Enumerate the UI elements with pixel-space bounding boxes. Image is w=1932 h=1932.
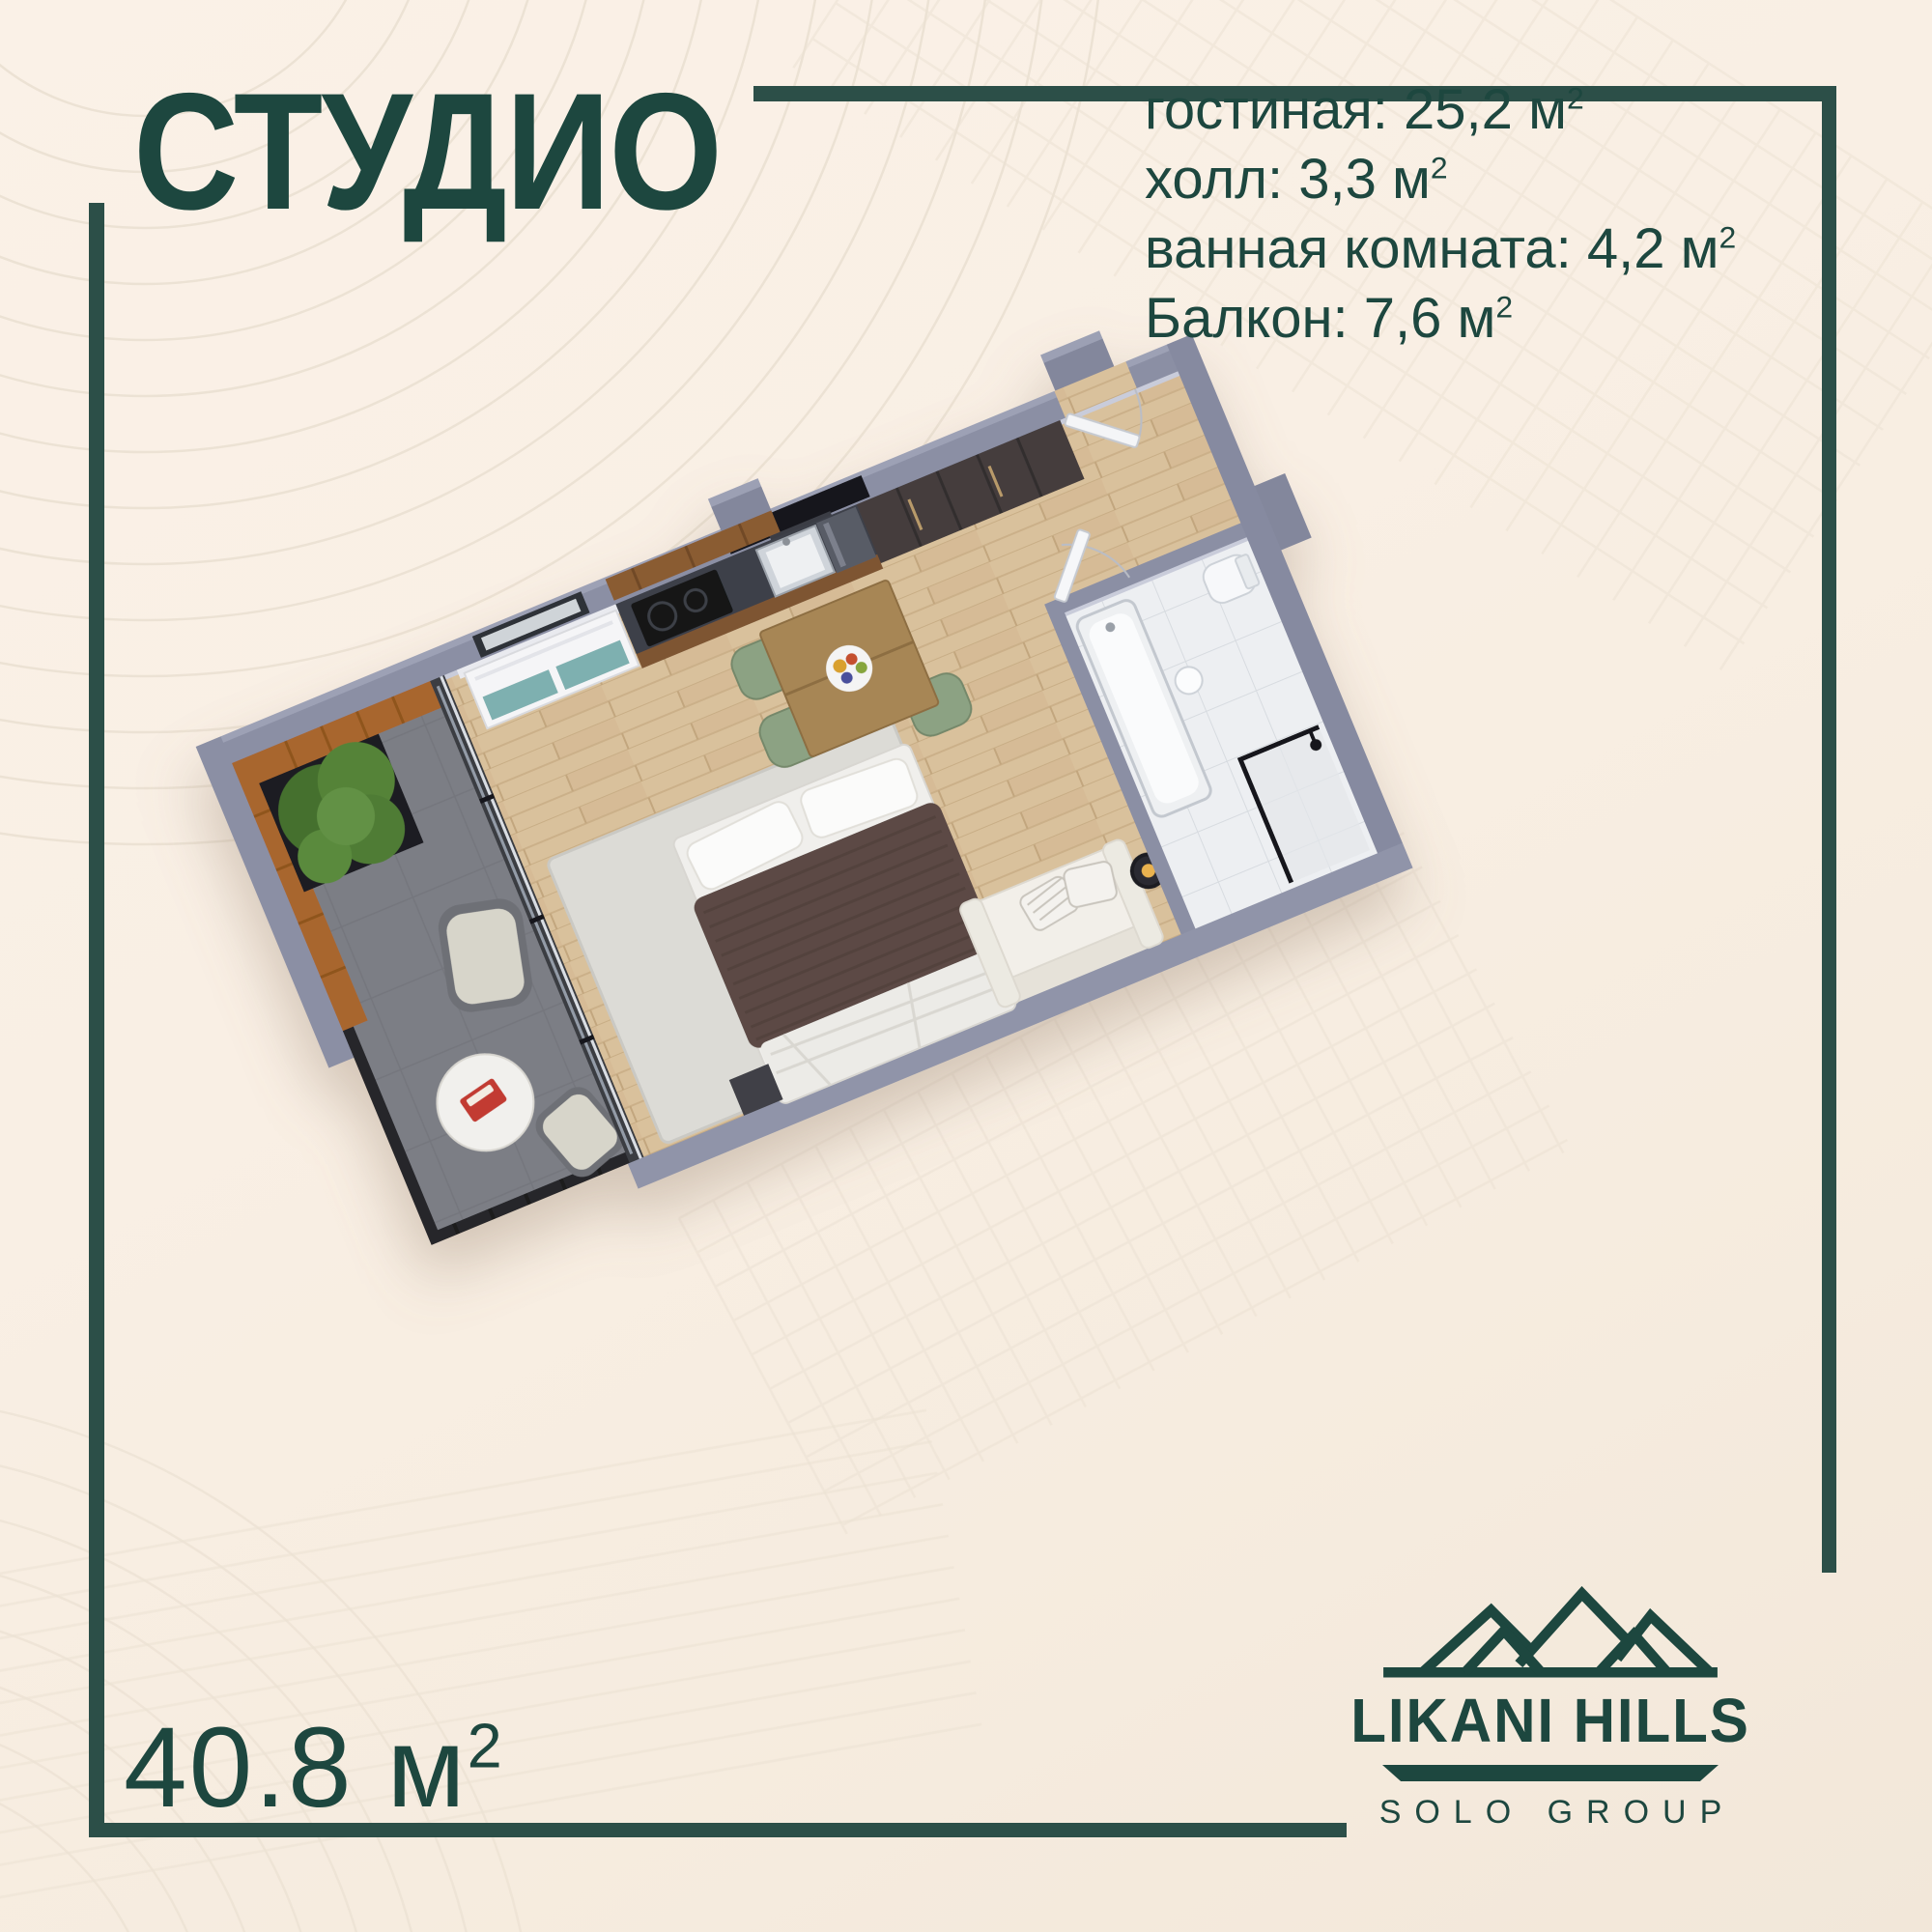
logo-name: LIKANI HILLS <box>1350 1685 1750 1756</box>
logo: LIKANI HILLS SOLO GROUP <box>1352 1586 1748 1832</box>
frame-bar-left <box>89 203 104 1837</box>
logo-subtitle: SOLO GROUP <box>1366 1794 1736 1832</box>
poster-canvas: СТУДИО гостиная: 25,2 м2 холл: 3,3 м2 ва… <box>0 0 1932 1932</box>
room-info-line: Балкон: 7,6 м2 <box>1145 284 1821 354</box>
room-info-list: гостиная: 25,2 м2 холл: 3,3 м2 ванная ко… <box>1145 75 1821 354</box>
room-info-line: гостиная: 25,2 м2 <box>1145 75 1821 145</box>
mountains-icon <box>1380 1586 1720 1679</box>
room-info-line: ванная комната: 4,2 м2 <box>1145 214 1821 284</box>
frame-bar-right <box>1822 86 1836 1573</box>
total-area: 40.8 м2 <box>124 1702 504 1833</box>
room-info-line: холл: 3,3 м2 <box>1145 145 1821 214</box>
logo-divider <box>1382 1765 1719 1781</box>
page-title: СТУДИО <box>133 56 721 247</box>
balcony-chair <box>436 895 536 1015</box>
